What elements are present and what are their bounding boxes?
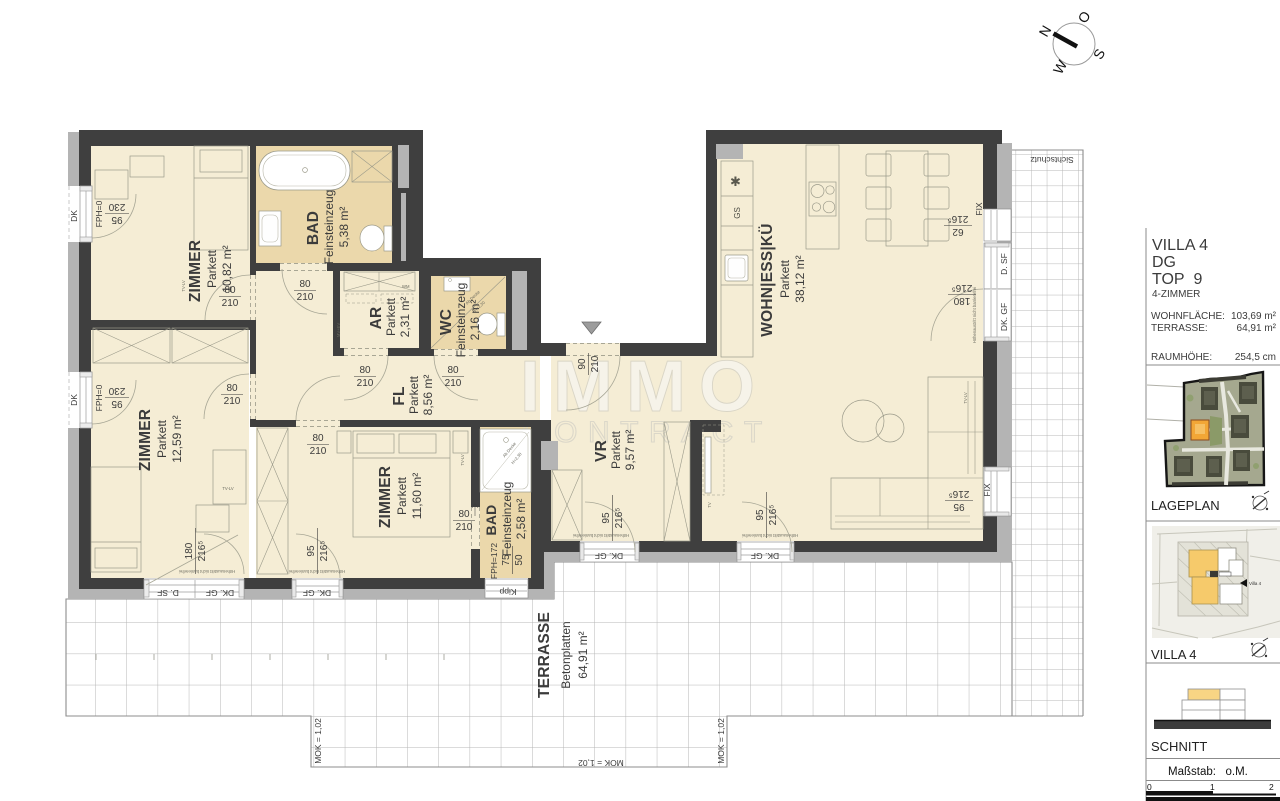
svg-text:95: 95: [601, 512, 612, 524]
svg-text:MOK = 1,02: MOK = 1,02: [313, 718, 323, 764]
svg-text:210: 210: [222, 298, 239, 309]
svg-text:254,5 cm: 254,5 cm: [1235, 352, 1276, 363]
svg-text:180: 180: [184, 542, 195, 559]
svg-text:210: 210: [224, 396, 241, 407]
svg-text:80: 80: [224, 285, 236, 296]
svg-text:1: 1: [1210, 782, 1215, 792]
svg-text:75: 75: [501, 554, 512, 566]
svg-text:216⁵: 216⁵: [948, 213, 969, 224]
svg-text:2,16 m²: 2,16 m²: [468, 300, 482, 341]
svg-text:SCHNITT: SCHNITT: [1151, 739, 1207, 754]
svg-text:WOHN|ESS|KÜ: WOHN|ESS|KÜ: [759, 223, 776, 336]
svg-text:210: 210: [590, 355, 601, 372]
svg-text:2: 2: [1269, 782, 1274, 792]
svg-text:0: 0: [1147, 782, 1152, 792]
svg-text:Parkett: Parkett: [778, 259, 792, 298]
svg-text:210: 210: [310, 446, 327, 457]
svg-text:ZIMMER: ZIMMER: [137, 409, 154, 471]
svg-text:216⁵: 216⁵: [319, 541, 330, 562]
svg-text:230: 230: [108, 385, 125, 396]
svg-text:FPH=172: FPH=172: [489, 543, 499, 579]
svg-text:DK: DK: [69, 394, 79, 406]
svg-text:TERRASSE: TERRASSE: [536, 612, 553, 698]
svg-text:12,59 m²: 12,59 m²: [170, 415, 184, 462]
svg-text:216⁵: 216⁵: [952, 282, 973, 293]
svg-text:80: 80: [447, 365, 459, 376]
svg-text:CONTRACT: CONTRACT: [522, 416, 773, 449]
svg-text:8,56 m²: 8,56 m²: [421, 375, 435, 416]
svg-text:Parkett: Parkett: [395, 476, 409, 515]
svg-text:80: 80: [359, 365, 371, 376]
svg-text:DK: DK: [69, 210, 79, 222]
svg-text:TV-LV: TV-LV: [460, 454, 465, 466]
svg-text:TV-LV: TV-LV: [963, 392, 968, 404]
svg-text:MV+EV: MV+EV: [336, 323, 341, 338]
svg-text:IMMO: IMMO: [520, 347, 768, 427]
svg-text:210: 210: [445, 378, 462, 389]
svg-text:WM: WM: [402, 284, 410, 289]
svg-text:216⁵: 216⁵: [768, 505, 779, 526]
svg-text:210: 210: [357, 378, 374, 389]
svg-text:BAD: BAD: [305, 211, 322, 245]
svg-text:ZIMMER: ZIMMER: [377, 466, 394, 528]
svg-text:Feinsteinzeug: Feinsteinzeug: [322, 190, 336, 265]
svg-text:GS: GS: [733, 207, 742, 219]
svg-text:DG: DG: [1152, 254, 1176, 271]
svg-text:Höhenaustritt nicht barrierefr: Höhenaustritt nicht barrierefrei: [289, 569, 345, 574]
svg-text:230: 230: [108, 201, 125, 212]
svg-text:WC: WC: [438, 309, 455, 335]
svg-text:Villa 4: Villa 4: [1249, 581, 1262, 586]
svg-text:BAD: BAD: [483, 505, 499, 536]
svg-text:MOK = 1,02: MOK = 1,02: [716, 718, 726, 764]
svg-text:RAUMHÖHE:: RAUMHÖHE:: [1151, 351, 1212, 363]
svg-text:216⁵: 216⁵: [197, 541, 208, 562]
svg-text:TV-LV: TV-LV: [181, 280, 186, 292]
svg-text:5,38 m²: 5,38 m²: [337, 207, 351, 248]
svg-text:Parkett: Parkett: [609, 430, 623, 469]
svg-text:95: 95: [111, 214, 123, 225]
svg-text:80: 80: [299, 279, 311, 290]
svg-text:D. SF: D. SF: [999, 253, 1009, 275]
svg-text:VR: VR: [593, 440, 610, 462]
svg-text:DK. GF: DK. GF: [595, 551, 623, 561]
svg-text:64,91 m²: 64,91 m²: [1237, 323, 1277, 334]
svg-text:TV-LV: TV-LV: [222, 486, 234, 491]
svg-text:DK. GF: DK. GF: [303, 588, 331, 598]
svg-text:9,57 m²: 9,57 m²: [623, 430, 637, 471]
svg-text:95: 95: [306, 545, 317, 557]
svg-text:38,12 m²: 38,12 m²: [793, 255, 807, 302]
svg-text:FIX: FIX: [982, 483, 992, 497]
svg-text:180: 180: [953, 295, 970, 306]
svg-text:FPH=0: FPH=0: [94, 384, 104, 411]
svg-text:FIX: FIX: [974, 202, 984, 216]
svg-text:50: 50: [514, 554, 525, 566]
svg-text:2,31 m²: 2,31 m²: [398, 297, 412, 338]
svg-text:80: 80: [312, 433, 324, 444]
svg-text:216⁵: 216⁵: [614, 508, 625, 529]
svg-text:Parkett: Parkett: [407, 375, 421, 414]
svg-text:Kipp: Kipp: [499, 587, 516, 597]
svg-text:✱: ✱: [730, 174, 741, 189]
svg-text:Feinsteinzeug: Feinsteinzeug: [454, 283, 468, 358]
svg-text:AR: AR: [368, 307, 385, 330]
svg-text:TOP 9: TOP 9: [1152, 271, 1202, 288]
svg-text:103,69 m²: 103,69 m²: [1231, 311, 1277, 322]
svg-text:Maßstab: o.M.: Maßstab: o.M.: [1168, 766, 1248, 778]
svg-text:ZIMMER: ZIMMER: [187, 240, 204, 302]
svg-text:Feinsteinzeug: Feinsteinzeug: [500, 482, 514, 557]
svg-text:DK. GF: DK. GF: [206, 588, 234, 598]
svg-text:WOHNFLÄCHE:: WOHNFLÄCHE:: [1151, 310, 1225, 322]
svg-text:62: 62: [952, 226, 964, 237]
svg-text:95: 95: [953, 501, 965, 512]
svg-text:210: 210: [297, 292, 314, 303]
svg-text:FPH=0: FPH=0: [94, 200, 104, 227]
svg-text:80: 80: [226, 383, 238, 394]
svg-text:95: 95: [755, 509, 766, 521]
svg-text:LAGEPLAN: LAGEPLAN: [1151, 498, 1220, 513]
svg-text:2,58 m²: 2,58 m²: [514, 499, 528, 540]
svg-text:DK. GF: DK. GF: [999, 303, 1009, 331]
svg-text:VILLA 4: VILLA 4: [1152, 237, 1208, 254]
svg-text:TERRASSE:: TERRASSE:: [1151, 323, 1208, 334]
svg-text:FL: FL: [391, 386, 408, 405]
svg-text:Parkett: Parkett: [155, 419, 169, 458]
svg-text:TV: TV: [707, 502, 712, 508]
svg-text:4-ZIMMER: 4-ZIMMER: [1152, 289, 1200, 300]
svg-text:64,91 m²: 64,91 m²: [576, 631, 590, 678]
svg-text:Höhenaustritt nicht barrierefr: Höhenaustritt nicht barrierefrei: [573, 533, 629, 538]
svg-text:D. SF: D. SF: [157, 588, 179, 598]
svg-text:Sichtschutz: Sichtschutz: [1030, 155, 1073, 165]
svg-text:11,60 m²: 11,60 m²: [410, 473, 424, 519]
svg-text:80: 80: [458, 509, 470, 520]
svg-text:MOK = 1,02: MOK = 1,02: [578, 758, 624, 768]
svg-text:216⁵: 216⁵: [949, 488, 970, 499]
svg-text:Parkett: Parkett: [384, 297, 398, 336]
svg-text:Betonplatten: Betonplatten: [559, 621, 573, 688]
svg-text:210: 210: [456, 522, 473, 533]
svg-text:Höhenaustritt nicht barrierefr: Höhenaustritt nicht barrierefrei: [972, 287, 977, 343]
svg-text:DK. GF: DK. GF: [751, 551, 779, 561]
svg-text:VILLA 4: VILLA 4: [1151, 647, 1197, 662]
svg-text:95: 95: [111, 398, 123, 409]
svg-text:Höhenaustritt nicht barrierefr: Höhenaustritt nicht barrierefrei: [179, 569, 235, 574]
svg-text:Parkett: Parkett: [205, 249, 219, 288]
svg-text:Höhenaustritt nicht barrierefr: Höhenaustritt nicht barrierefrei: [742, 533, 798, 538]
svg-text:90: 90: [577, 358, 588, 370]
